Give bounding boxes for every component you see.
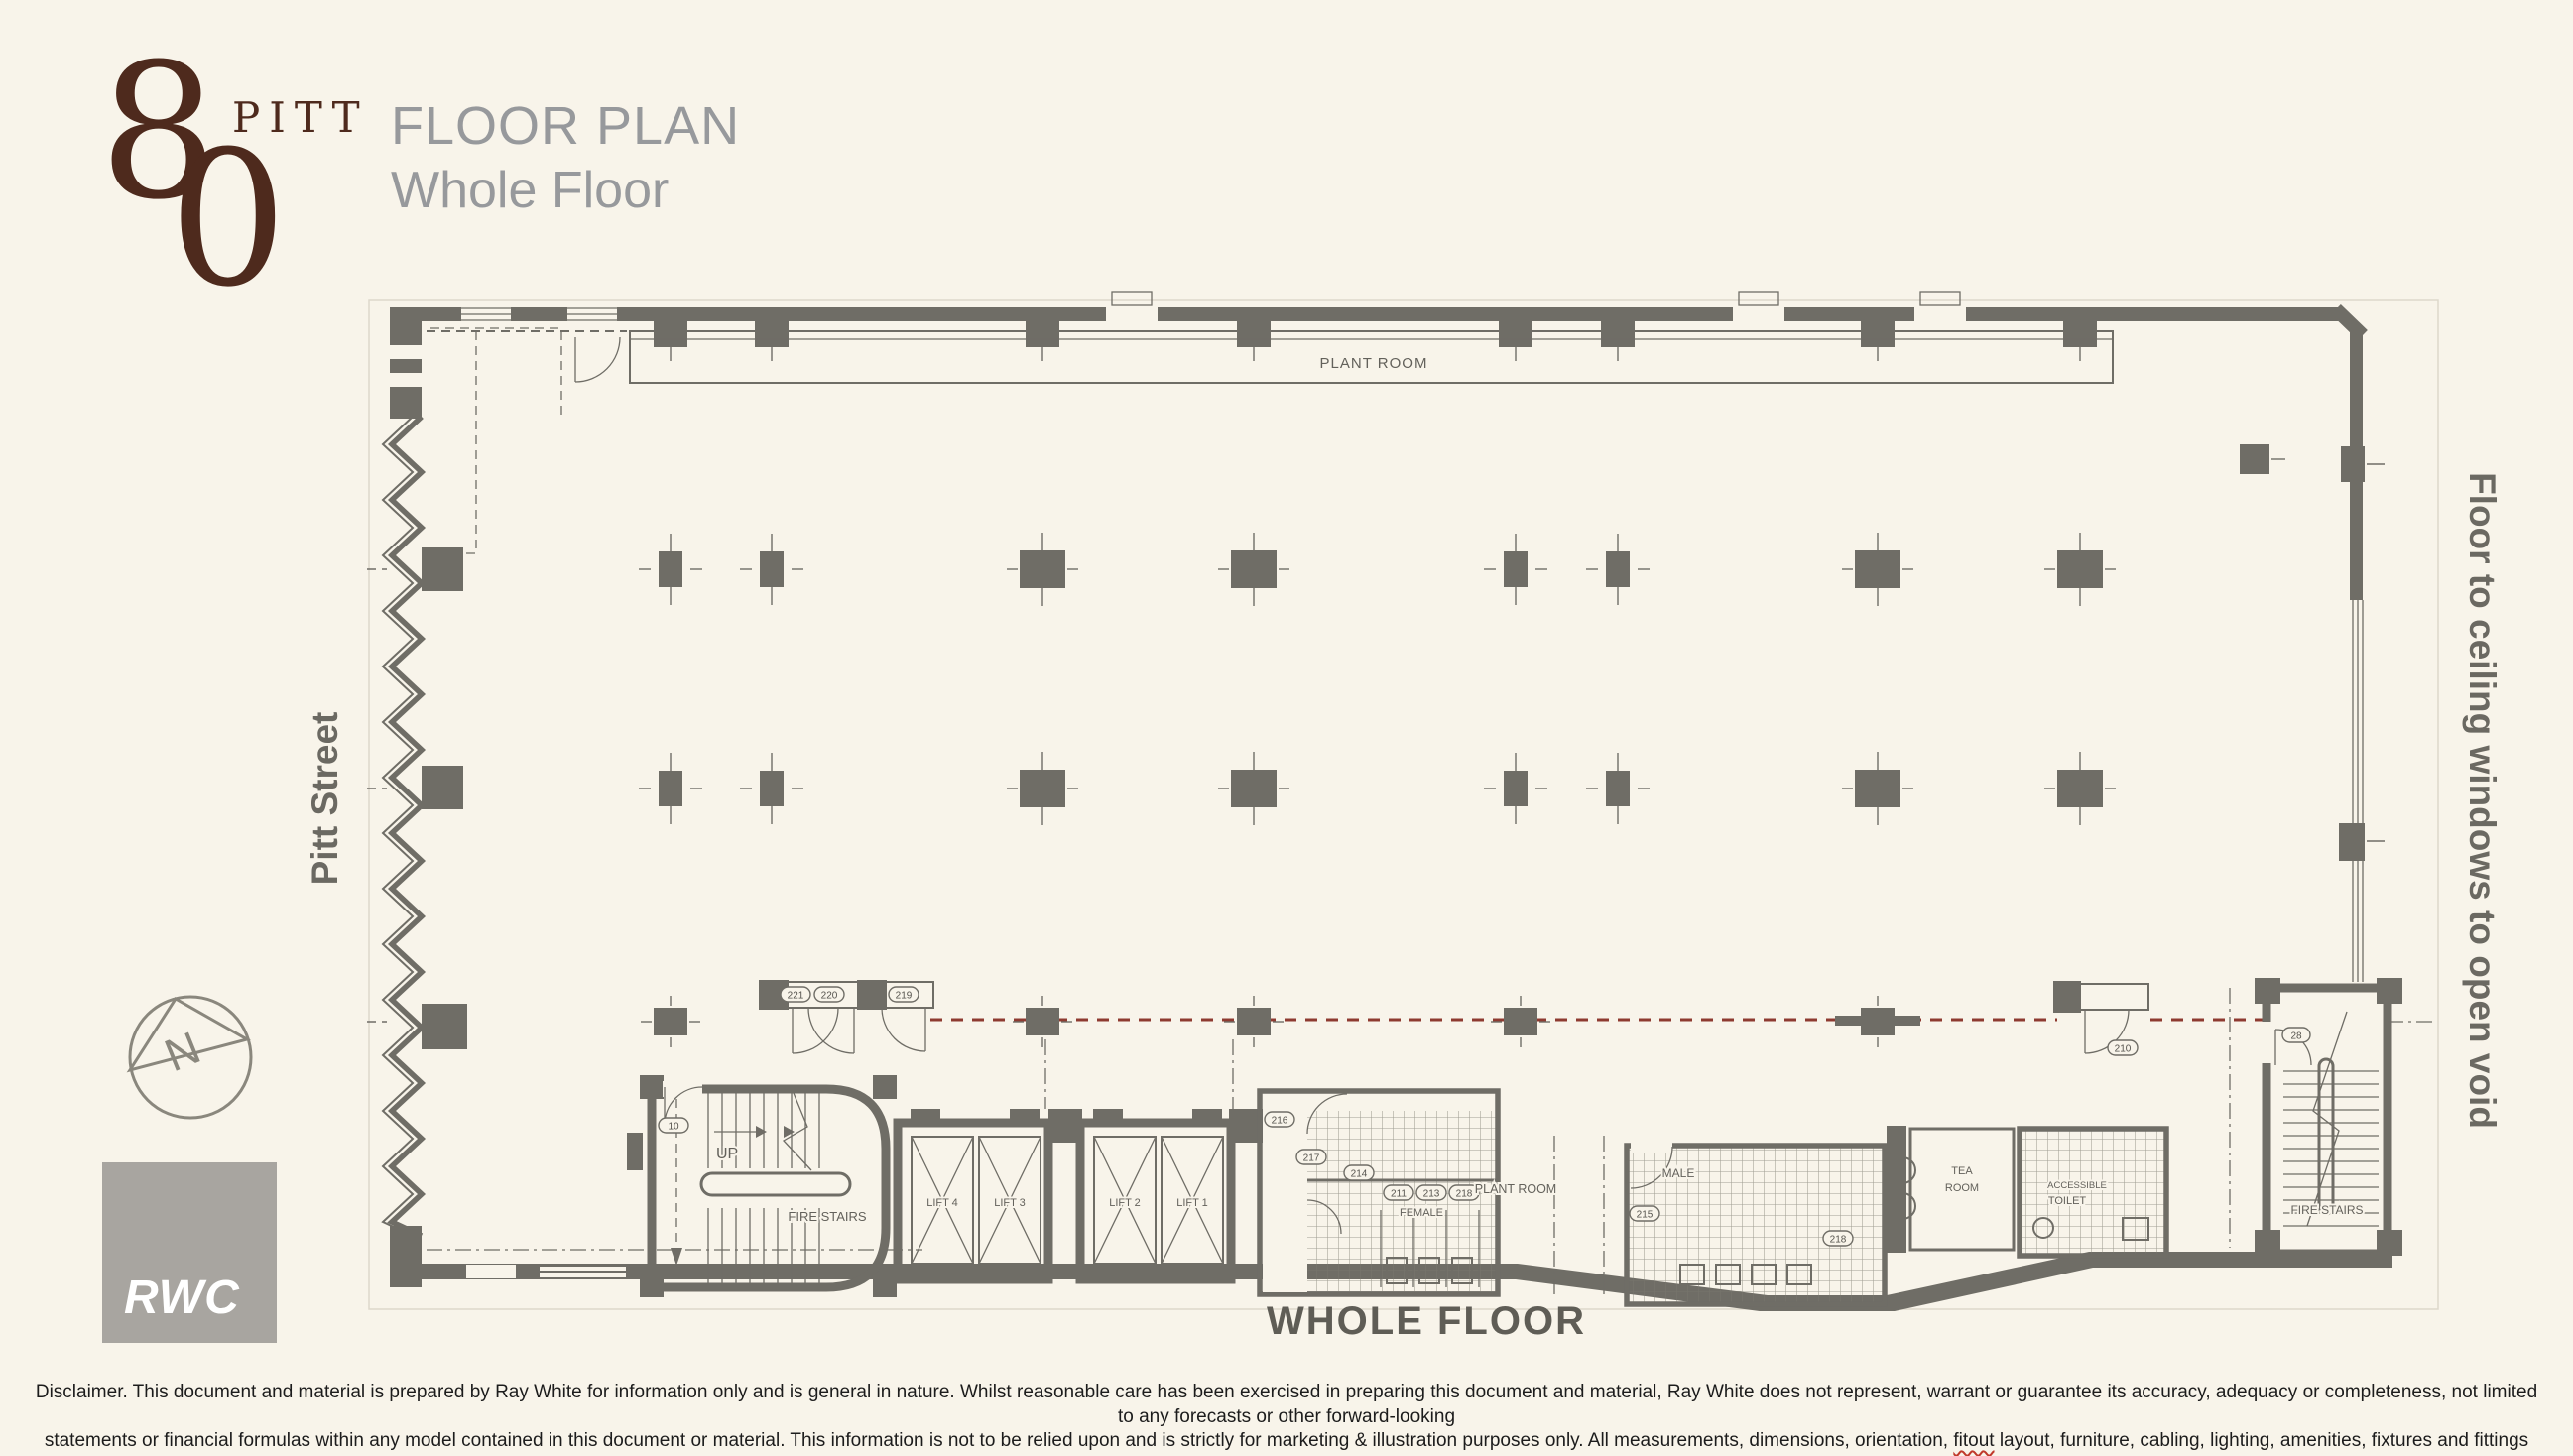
- svg-text:213: 213: [1423, 1189, 1440, 1200]
- door-tag-210: 210: [2108, 1040, 2138, 1055]
- lobby-doors: 221 220 219: [759, 980, 933, 1053]
- rwc-logo-text: RWC: [124, 1271, 240, 1325]
- door-tag-216: 216: [1265, 1112, 1294, 1127]
- svg-text:211: 211: [1391, 1189, 1407, 1200]
- street-label: Pitt Street: [305, 712, 346, 886]
- svg-text:219: 219: [896, 991, 913, 1002]
- svg-text:215: 215: [1637, 1210, 1654, 1221]
- label-lift-1: LIFT 1: [1176, 1197, 1208, 1209]
- female-toilets: 216 217 214 211 213 218 FEMALE: [1260, 1091, 1498, 1294]
- label-plant-room-top: PLANT ROOM: [1320, 355, 1428, 372]
- lift-bank-left: LIFT 4 LIFT 3: [898, 1109, 1048, 1279]
- rwc-logo: RWC: [102, 1162, 277, 1343]
- label-tea-room: ROOM: [1945, 1182, 1979, 1194]
- disclaimer-line-2: statements or financial formulas within …: [30, 1429, 2543, 1456]
- left-window-wall: [367, 307, 467, 1287]
- label-tea: TEA: [1951, 1165, 1973, 1177]
- cubicle-tag-211: 211: [1384, 1185, 1413, 1200]
- label-accessible: ACCESSIBLE: [2047, 1180, 2107, 1191]
- page-subtitle: Whole Floor: [391, 161, 669, 220]
- label-male: MALE: [1662, 1166, 1695, 1180]
- plan-caption: WHOLE FLOOR: [1267, 1299, 1586, 1344]
- svg-text:214: 214: [1351, 1169, 1368, 1180]
- svg-text:221: 221: [788, 991, 804, 1002]
- door-tag-215: 215: [1630, 1206, 1659, 1221]
- lift-bank-right: LIFT 2 LIFT 1: [1080, 1109, 1231, 1279]
- svg-text:28: 28: [2290, 1031, 2302, 1042]
- cubicle-tag-213: 213: [1416, 1185, 1446, 1200]
- male-toilets: MALE 215 218: [1627, 1141, 1915, 1304]
- plant-room-strip: PLANT ROOM: [575, 331, 2113, 383]
- svg-text:216: 216: [1272, 1116, 1288, 1127]
- door-tag-221: 221: [781, 987, 810, 1002]
- accessible-toilet: ACCESSIBLE TOILET: [2020, 1129, 2166, 1256]
- svg-text:217: 217: [1303, 1153, 1320, 1164]
- door-tag-220: 220: [814, 987, 844, 1002]
- corridor-door-210: 210: [2053, 981, 2148, 1055]
- svg-text:218: 218: [1830, 1235, 1847, 1246]
- column-grid: [639, 533, 2116, 1047]
- label-accessible-toilet: TOILET: [2048, 1195, 2087, 1207]
- windows-void-label: Floor to ceiling windows to open void: [2461, 472, 2503, 1129]
- svg-text:210: 210: [2115, 1044, 2132, 1055]
- right-wall: [2240, 332, 2385, 982]
- svg-text:220: 220: [821, 991, 838, 1002]
- disclaimer-misspelled-word: fitout: [1953, 1430, 1994, 1451]
- label-fire-stairs-right: FIRE STAIRS: [2290, 1203, 2363, 1217]
- door-tag-28: 28: [2282, 1028, 2310, 1042]
- top-left-dashed-guides: [425, 328, 561, 553]
- label-plant-room-bottom: PLANT ROOM: [1475, 1182, 1556, 1196]
- label-lift-2: LIFT 2: [1109, 1197, 1141, 1209]
- disclaimer-line-1: Disclaimer. This document and material i…: [30, 1381, 2543, 1429]
- label-fire-stairs-left: FIRE STAIRS: [788, 1209, 867, 1224]
- stair-treads-right: [2283, 1012, 2379, 1226]
- door-tag-217: 217: [1296, 1150, 1326, 1164]
- page: 8 0 PITT FLOOR PLAN Whole Floor Pitt Str…: [0, 0, 2573, 1456]
- svg-text:10: 10: [668, 1122, 679, 1133]
- logo-digit-0: 0: [169, 127, 288, 313]
- disclaimer: Disclaimer. This document and material i…: [30, 1381, 2543, 1456]
- door-tag-218b: 218: [1823, 1231, 1853, 1246]
- door-tag-214: 214: [1344, 1165, 1374, 1180]
- label-lift-4: LIFT 4: [926, 1197, 958, 1209]
- page-title: FLOOR PLAN: [391, 95, 740, 157]
- floor-plan-drawing: PLANT ROOM: [367, 288, 2450, 1319]
- top-wall: [390, 292, 2363, 361]
- label-female: FEMALE: [1400, 1207, 1443, 1219]
- tea-room: TEA ROOM: [1887, 1126, 2014, 1253]
- north-compass-icon: N: [124, 992, 259, 1127]
- compass-north-letter: N: [158, 1022, 207, 1082]
- svg-text:218: 218: [1456, 1189, 1473, 1200]
- stair-treads: [671, 1093, 850, 1283]
- disclaimer-line-2-before: statements or financial formulas within …: [45, 1430, 1948, 1451]
- door-tag-219: 219: [889, 987, 919, 1002]
- logo-word-pitt: PITT: [232, 93, 369, 142]
- label-lift-3: LIFT 3: [994, 1197, 1026, 1209]
- label-up: UP: [716, 1146, 738, 1162]
- door-tag-10: 10: [659, 1118, 688, 1133]
